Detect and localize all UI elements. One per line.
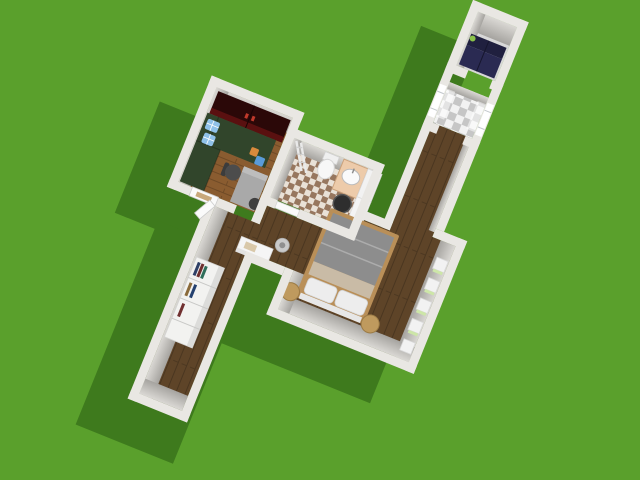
floor-plan-canvas[interactable] — [0, 0, 640, 480]
floor-plan-3d-render — [0, 0, 640, 480]
